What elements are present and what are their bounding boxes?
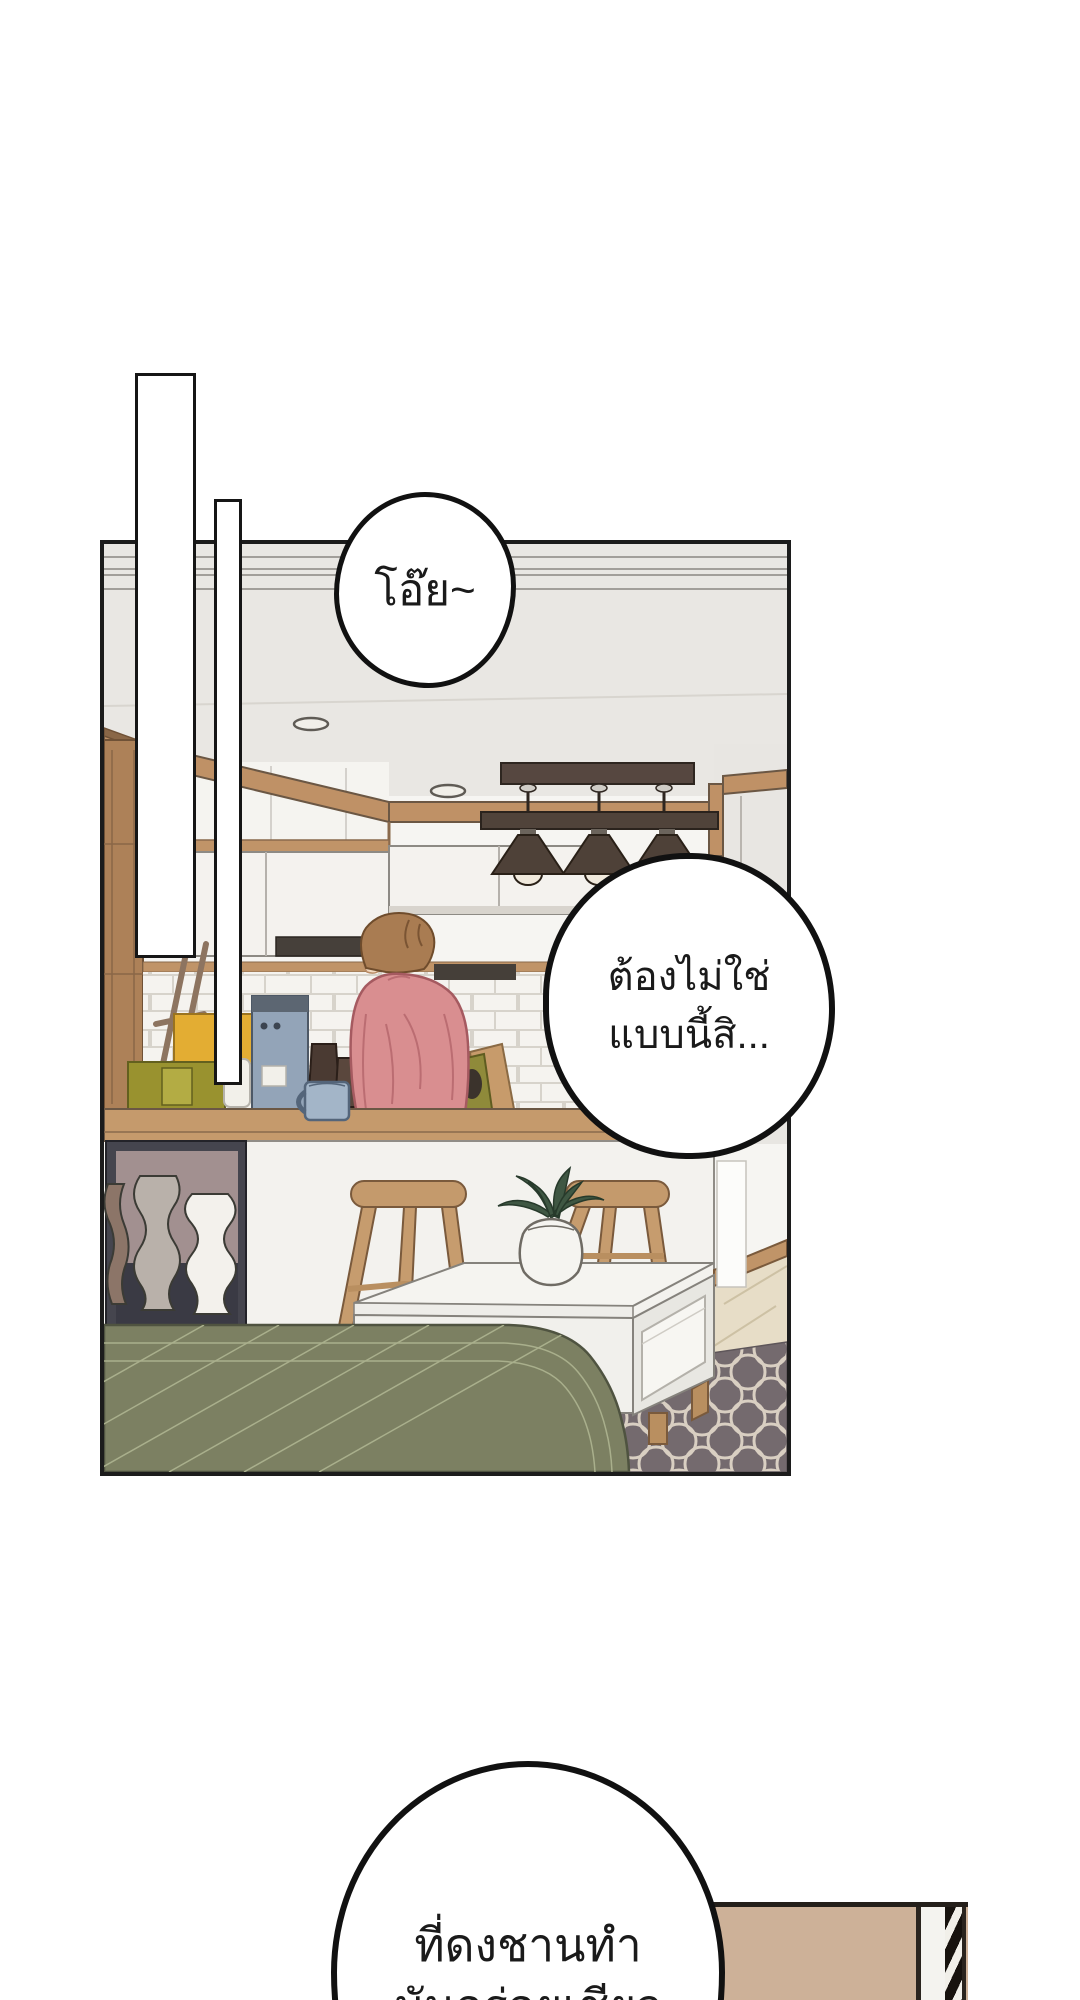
speech-bubble-3-line2: มันอร่อยเชียว [394, 1976, 662, 2000]
speech-bubble-1-text: โอ๊ย~ [374, 555, 476, 625]
speech-bubble-3: ที่ดงชานทำ มันอร่อยเชียว [331, 1761, 725, 2000]
dark-diagonal-detail [945, 1907, 962, 2000]
speech-bubble-2-line2: แบบนี้สิ... [608, 1006, 770, 1064]
hood-shadow [434, 964, 516, 980]
panel-right-edge [962, 1907, 966, 2000]
speech-bubble-2-line1: ต้องไม่ใช่ [608, 948, 771, 1006]
white-speed-bar-2 [214, 499, 242, 1085]
speech-bubble-2: ต้องไม่ใช่ แบบนี้สิ... [543, 853, 835, 1159]
wavy-vase-display [104, 1141, 246, 1331]
divider-wall [717, 1161, 746, 1287]
hair [361, 913, 434, 973]
speech-bubble-1: โอ๊ย~ [334, 492, 516, 688]
green-sofa [104, 1325, 629, 1472]
coffee-machine [252, 996, 308, 1109]
white-speed-bar-1 [135, 373, 196, 958]
comic-page: โอ๊ย~ ต้องไม่ใช่ แบบนี้สิ... ที่ดงชานทำ … [0, 0, 1080, 2000]
flush-light-1 [294, 718, 328, 730]
speech-bubble-3-line1: ที่ดงชานทำ [414, 1915, 641, 1976]
person-in-pink-sweater [351, 913, 469, 1119]
door-white-strip [921, 1907, 945, 2000]
blue-mug [299, 1082, 350, 1120]
flush-light-2 [431, 785, 465, 797]
